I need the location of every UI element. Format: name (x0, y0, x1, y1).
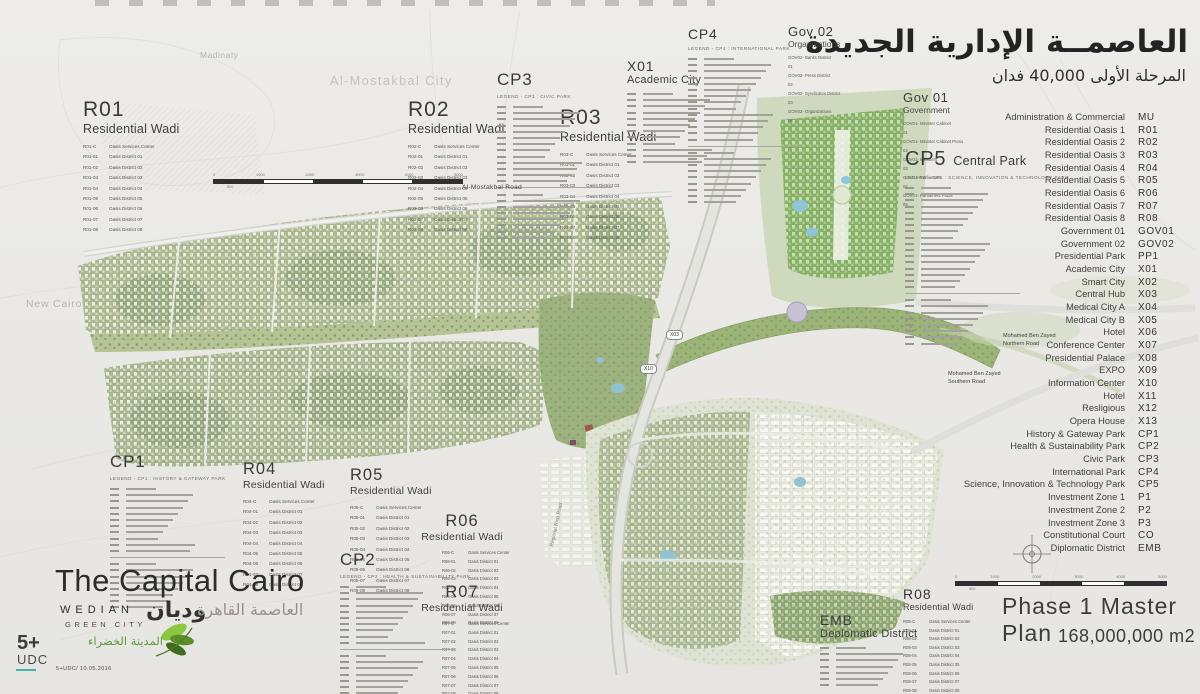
udc-url-text (16, 669, 36, 671)
block-cp5: CP5Central Park LEGEND - CP5 : SCIENCE, … (905, 148, 1145, 347)
scale-segment (1124, 582, 1166, 585)
legend-microtext-name (356, 605, 413, 607)
legend-microtext-code (627, 130, 636, 132)
legend-microtext-name (704, 58, 734, 60)
legend-microtext-code (688, 170, 697, 172)
legend-row: International ParkCP4 (860, 467, 1190, 480)
green-city-wordmark: GREEN CITY (65, 620, 146, 629)
legend-microtext-name (126, 488, 156, 490)
legend-item-name: EXPO (1099, 365, 1125, 375)
oasis-item-code: R02-06 (408, 204, 427, 214)
oasis-item-code: R01-08 (83, 225, 102, 235)
legend-microtext-name (126, 513, 178, 515)
legend-microtext-name (126, 550, 190, 552)
legend-item-code: X04 (1138, 302, 1190, 313)
gov-item-name: Banks District (805, 53, 831, 71)
scale-bar: 010002000300040005000500 (213, 172, 463, 189)
oasis-item-code: R01-07 (83, 215, 102, 225)
legend-microtext-code (820, 684, 829, 686)
scale-segments (955, 581, 1167, 586)
legend-microtext-name (356, 617, 403, 619)
legend-microtext-name (836, 659, 898, 661)
legend-microtext-code (688, 183, 697, 185)
legend-item-code: R07 (1138, 201, 1190, 212)
legend-microtext-name (704, 70, 766, 72)
oasis-item-name: Oasis District 03 (929, 644, 959, 653)
legend-microtext-name (921, 224, 963, 226)
legend-item-code: CP5 (1138, 479, 1190, 490)
legend-microtext-code (340, 642, 349, 644)
legend-microtext-code (688, 176, 697, 178)
legend-item-code: R05 (1138, 175, 1190, 186)
legend-microtext-name (513, 218, 565, 220)
udc-logo-bottom: UDC (17, 652, 48, 667)
oasis-item-name: Oasis District 06 (929, 670, 959, 679)
legend-item-code: X05 (1138, 315, 1190, 326)
scale-sub-label: 500 (227, 185, 463, 189)
oasis-item-name: Oasis District 08 (929, 687, 959, 694)
legend-microtext-code (688, 120, 697, 122)
oasis-item-name: Oasis Services Center (929, 618, 971, 627)
legend-item-code: CO (1138, 530, 1190, 541)
legend-item-name: Science, Innovation & Technology Park (964, 479, 1125, 489)
oasis-item-name: Oasis District 05 (109, 194, 142, 204)
legend-item-code: R02 (1138, 137, 1190, 148)
gov-item-code: GOV02-02 (788, 71, 805, 89)
scale-tick-label: 1000 (990, 574, 999, 579)
legend-microtext-code (340, 611, 349, 613)
legend-microtext-code (688, 95, 697, 97)
legend-microtext-name (513, 237, 550, 239)
block-cp2: CP2 LEGEND - CP2 : HEALTH & SUSTAINABILI… (340, 550, 510, 694)
scale-tick-label: 4000 (1116, 574, 1125, 579)
scale-segment (363, 180, 413, 183)
legend-microtext-name (836, 647, 866, 649)
block-title: Residential Wadi (350, 485, 432, 497)
legend-microtext-name (356, 629, 393, 631)
legend-item-code: X01 (1138, 264, 1190, 275)
scale-tick-label: 1000 (256, 172, 265, 177)
block-title: Deplomatic District (820, 628, 917, 640)
oasis-item-code: R02-01 (408, 152, 427, 162)
legend-divider (110, 557, 225, 558)
legend-microtext-code (340, 592, 349, 594)
legend-item-code: CP2 (1138, 441, 1190, 452)
legend-microtext-code (110, 544, 119, 546)
legend-microtext-code (905, 299, 914, 301)
legend-microtext-code (905, 280, 914, 282)
legend-microtext-code (905, 230, 914, 232)
legend-row: Investment Zone 2P2 (860, 505, 1190, 518)
legend-microtext-code (497, 194, 506, 196)
legend-microtext-code (110, 538, 119, 540)
master-plan-poster: Madinaty Al-Mostakbal City New Cairo الع… (0, 0, 1200, 694)
legend-microtext-name (356, 611, 408, 613)
legend-microtext-name (513, 212, 570, 214)
legend-microtext-code (905, 255, 914, 257)
scale-segment (956, 582, 998, 585)
legend-microtext-name (356, 686, 403, 688)
legend-microtext-name (921, 212, 973, 214)
legend-item-name: Resligious (1082, 403, 1125, 413)
legend-microtext-name (704, 83, 756, 85)
legend-microtext-name (513, 200, 580, 202)
legend-item-code: R03 (1138, 150, 1190, 161)
legend-microtext-code (688, 139, 697, 141)
gov-item-name: Organizations (805, 107, 832, 125)
gov-list-row: GOV02-04Organizations (788, 107, 840, 125)
block-subtitle: LEGEND - CP3 : CIVIC PARK (497, 94, 647, 99)
legend-microtext-code (905, 336, 914, 338)
legend-microtext-code (110, 500, 119, 502)
oasis-item-name: Oasis District 06 (109, 204, 142, 214)
legend-microtext-name (704, 195, 741, 197)
legend-row: Health & Sustainability ParkCP2 (860, 441, 1190, 454)
legend-row: Science, Innovation & Technology ParkCP5 (860, 479, 1190, 492)
legend-item-name: Diplomatic District (1051, 543, 1125, 553)
legend-microtext-code (340, 617, 349, 619)
oasis-list-row: R01-08Oasis District 08 (83, 225, 180, 235)
legend-microtext-code (110, 513, 119, 515)
legend-microtext-row (688, 136, 828, 142)
scale-bar: 010002000300040005000500 (955, 574, 1167, 591)
oasis-list-row: R01-04Oasis District 04 (83, 184, 180, 194)
legend-microtext-code (340, 667, 349, 669)
legend-microtext-name (643, 130, 685, 132)
legend-microtext-name (356, 667, 418, 669)
scale-segment (313, 180, 363, 183)
legend-microtext-name (704, 176, 756, 178)
legend-microtext-code (820, 666, 829, 668)
legend-microtext-code (905, 206, 914, 208)
legend-microtext-code (627, 112, 636, 114)
legend-item-code: X08 (1138, 353, 1190, 364)
legend-microtext-code (497, 143, 506, 145)
legend-microtext-name (704, 164, 766, 166)
page-subtitle-arabic: المرحلة الأولى 40,000 فدان (992, 66, 1186, 85)
legend-item-code: P2 (1138, 505, 1190, 516)
oasis-item-code: R01-02 (83, 163, 102, 173)
legend-microtext-code (110, 507, 119, 509)
legend-row: Investment Zone 1P1 (860, 492, 1190, 505)
legend-microtext-code (688, 70, 697, 72)
legend-microtext-name (921, 286, 955, 288)
legend-microtext-code (688, 195, 697, 197)
scale-labels: 010002000300040005000 (213, 172, 463, 177)
oasis-item-code: R02-08 (408, 225, 427, 235)
legend-microtext-name (704, 95, 746, 97)
legend-microtext-code (627, 124, 636, 126)
legend-item-code: GOV02 (1138, 239, 1190, 250)
legend-item-name: Investment Zone 3 (1048, 518, 1125, 528)
legend-microtext-code (688, 132, 697, 134)
gov-item-name: Press District (805, 71, 830, 89)
legend-item-name: Administration & Commercial (1005, 112, 1125, 122)
legend-row: Opera HouseX13 (860, 416, 1190, 429)
legend-microtext-code (820, 678, 829, 680)
legend-microtext-code (905, 218, 914, 220)
legend-microtext-code (340, 623, 349, 625)
oasis-item-code: R05-03 (350, 534, 369, 544)
scale-tick-label: 5000 (1158, 574, 1167, 579)
oasis-item-code: R01-06 (83, 204, 102, 214)
legend-microtext-code (688, 77, 697, 79)
legend-microtext-name (704, 89, 751, 91)
legend-microtext-name (704, 158, 771, 160)
oasis-list-row: R02-05Oasis District 05 (408, 194, 505, 204)
legend-microtext-name (704, 114, 773, 116)
legend-microtext-name (921, 330, 968, 332)
legend-microtext-name (921, 312, 983, 314)
legend-microtext-name (513, 168, 577, 170)
road-label-line: Southern Road (948, 378, 1001, 386)
legend-microtext-name (921, 218, 968, 220)
legend-microtext-name (836, 666, 893, 668)
legend-microtext-name (704, 120, 768, 122)
legend-microtext-name (921, 187, 951, 189)
legend-microtext-code (688, 201, 697, 203)
legend-microtext-name (513, 112, 580, 114)
block-subtitle: LEGEND - CP5 : SCIENCE, INNOVATION & TEC… (905, 175, 1145, 180)
legend-item-name: Opera House (1070, 416, 1125, 426)
map-label-mostakbal-city: Al-Mostakbal City (330, 74, 453, 88)
oasis-item-name: Oasis Services Center (109, 142, 155, 152)
wedian-wordmark: WEDIAN (60, 604, 134, 616)
legend-microtext-name (513, 131, 565, 133)
legend-microtext-name (921, 249, 985, 251)
scale-segments (213, 179, 463, 184)
legend-microtext-name (921, 199, 983, 201)
legend-row: Civic ParkCP3 (860, 454, 1190, 467)
scale-sub-label: 500 (969, 587, 1167, 591)
legend-microtext-code (627, 93, 636, 95)
legend-microtext-name (921, 343, 958, 345)
legend-microtext-name (513, 137, 560, 139)
legend-item-name: History & Gateway Park (1026, 429, 1125, 439)
block-title: Residential Wadi (83, 122, 180, 136)
legend-microtext-code (820, 659, 829, 661)
legend-microtext-code (497, 156, 506, 158)
legend-microtext-name (513, 206, 575, 208)
oasis-item-name: Oasis District 07 (929, 678, 959, 687)
legend-microtext-name (513, 224, 560, 226)
legend-microtext-code (340, 674, 349, 676)
legend-microtext-code (905, 193, 914, 195)
oasis-list-row: R01-06Oasis District 06 (83, 204, 180, 214)
block-emb: EMB Deplomatic District (820, 612, 917, 688)
legend-microtext-name (921, 305, 988, 307)
map-label-madinaty: Madinaty (200, 50, 239, 60)
legend-microtext-name (704, 152, 734, 154)
legend-microtext-code (497, 125, 506, 127)
legend-microtext-code (905, 268, 914, 270)
legend-microtext-code (905, 312, 914, 314)
legend-microtext-name (921, 237, 953, 239)
oasis-item-name: Oasis District 05 (434, 194, 467, 204)
legend-microtext-row (688, 199, 828, 205)
legend-microtext-code (110, 550, 119, 552)
legend-microtext-name (836, 678, 883, 680)
legend-microtext-name (513, 180, 567, 182)
block-subtitle: LEGEND - CP2 : HEALTH & SUSTAINABILITY P… (340, 574, 510, 579)
legend-microtext-code (497, 106, 506, 108)
block-code: CP2 (340, 550, 510, 570)
legend-microtext-code (340, 680, 349, 682)
legend-divider (340, 649, 455, 650)
legend-item-code: X12 (1138, 403, 1190, 414)
oasis-item-name: Oasis District 01 (109, 152, 142, 162)
gov-item-code: GOV02-01 (788, 53, 805, 71)
legend-microtext-name (704, 108, 736, 110)
legend-microtext-name (513, 118, 575, 120)
legend-item-code: X06 (1138, 327, 1190, 338)
legend-microtext-code (627, 149, 636, 151)
legend-microtext-name (126, 507, 183, 509)
legend-row: EXPOX09 (860, 365, 1190, 378)
oasis-item-code: R05-02 (350, 524, 369, 534)
legend-microtext-name (126, 494, 193, 496)
legend-item-name: Investment Zone 1 (1048, 492, 1125, 502)
block-r02: R02 Residential Wadi R02-COasis Services… (408, 98, 505, 236)
legend-microtext-name (921, 255, 980, 257)
legend-microtext-name (513, 174, 572, 176)
legend-item-code: PP1 (1138, 251, 1190, 262)
legend-item-code: X09 (1138, 365, 1190, 376)
oasis-list-row: R01-02Oasis District 02 (83, 163, 180, 173)
legend-microtext-code (905, 249, 914, 251)
legend-microtext-name (513, 149, 550, 151)
legend-microtext-name (643, 143, 675, 145)
oasis-item-code: R01-C (83, 142, 102, 152)
legend-row: HotelX11 (860, 391, 1190, 404)
legend-divider (905, 293, 1020, 294)
legend-microtext-row (340, 690, 510, 694)
legend-microtext-code (340, 586, 349, 588)
legend-microtext-code (688, 158, 697, 160)
oasis-item-code: R02-07 (408, 215, 427, 225)
legend-microtext-name (704, 64, 771, 66)
gov-item-name: Minister Cabinet (920, 119, 951, 137)
legend-microtext-code (497, 131, 506, 133)
oasis-item-name: Oasis District 08 (109, 225, 142, 235)
page-title-arabic: العاصمــة الإدارية الجديدة (805, 24, 1188, 60)
legend-microtext-code (497, 168, 506, 170)
oasis-item-name: Oasis District 02 (929, 635, 959, 644)
legend-item-name: Civic Park (1083, 454, 1125, 464)
project-title-arabic: العاصمة القاهرة (197, 600, 303, 619)
legend-microtext-name (836, 672, 888, 674)
legend-microtext-name (921, 243, 990, 245)
legend-microtext-code (905, 343, 914, 345)
scale-segment (412, 180, 462, 183)
block-title: Residential Wadi (408, 122, 505, 136)
legend-microtext-name (704, 101, 741, 103)
oasis-list-row: R02-07Oasis District 07 (408, 215, 505, 225)
legend-microtext-code (688, 108, 697, 110)
block-code: Gov 02 (788, 24, 840, 39)
legend-microtext-code (820, 647, 829, 649)
legend-microtext-name (921, 336, 963, 338)
legend-microtext-code (497, 118, 506, 120)
block-r01: R01 Residential Wadi R01-COasis Services… (83, 98, 180, 236)
legend-microtext-code (110, 519, 119, 521)
legend-microtext-name (356, 642, 425, 644)
legend-microtext-code (688, 58, 697, 60)
legend-microtext-name (643, 136, 680, 138)
legend-microtext-name (513, 194, 543, 196)
legend-microtext-name (356, 636, 388, 638)
scale-segment (214, 180, 264, 183)
oasis-list-row: R01-07Oasis District 07 (83, 215, 180, 225)
oasis-item-code: R02-05 (408, 194, 427, 204)
legend-microtext-code (905, 212, 914, 214)
road-label-line: Northern Road (1003, 340, 1056, 348)
legend-microtext-name (356, 586, 386, 588)
legend-microtext-code (110, 494, 119, 496)
legend-row: Presidential PalaceX08 (860, 353, 1190, 366)
legend-microtext-code (497, 200, 506, 202)
legend-microtext-name (513, 106, 543, 108)
project-title: The Capital Cairo (55, 563, 305, 599)
block-cp3: CP3 LEGEND - CP3 : CIVIC PARK (497, 70, 647, 241)
scale-labels: 010002000300040005000 (955, 574, 1167, 579)
legend-microtext-code (905, 274, 914, 276)
legend-microtext-row (110, 548, 290, 554)
legend-item-code: R08 (1138, 213, 1190, 224)
legend-microtext-code (340, 655, 349, 657)
legend-microtext-code (688, 114, 697, 116)
block-title: Residential Wadi (402, 531, 522, 543)
block-code: CP5 (905, 148, 946, 170)
gov-list-row: GOV02-02Press District (788, 71, 840, 89)
legend-microtext-code (688, 189, 697, 191)
legend-microtext-code (627, 155, 636, 157)
legend-item-code: MU (1138, 112, 1190, 123)
oasis-item-code: R02-C (408, 142, 427, 152)
legend-microtext-code (688, 126, 697, 128)
legend-microtext-code (340, 605, 349, 607)
map-label-new-cairo: New Cairo (26, 298, 82, 310)
scale-tick-label: 0 (955, 574, 957, 579)
legend-microtext-name (356, 592, 423, 594)
legend-microtext-name (921, 206, 978, 208)
legend-microtext-row (340, 640, 510, 646)
legend-microtext-code (905, 187, 914, 189)
oasis-item-code: R05-01 (350, 513, 369, 523)
gov-item-code: GOV02-04 (788, 107, 805, 125)
scale-tick-label: 3000 (1074, 574, 1083, 579)
legend-item-code: R04 (1138, 163, 1190, 174)
legend-row: Investment Zone 3P3 (860, 518, 1190, 531)
legend-item-name: Constitutional Court (1043, 530, 1125, 540)
credit-line: 5+UDC/ 10.05.2016 (56, 666, 112, 672)
legend-microtext-code (497, 231, 506, 233)
road-label-mostakbal: Al-Mostakbal Road (462, 184, 522, 191)
legend-microtext-code (905, 330, 914, 332)
legend-microtext-name (513, 231, 555, 233)
legend-item-code: GOV01 (1138, 226, 1190, 237)
block-title: Government (903, 105, 963, 115)
legend-microtext-code (905, 243, 914, 245)
cropped-header-artifact (95, 0, 715, 6)
legend-microtext-name (704, 77, 761, 79)
legend-microtext-code (820, 653, 829, 655)
legend-microtext-name (126, 538, 158, 540)
gov-list-row: GOV02-03Syndicates District (788, 89, 840, 107)
legend-microtext-code (688, 83, 697, 85)
scale-tick-label: 3000 (355, 172, 364, 177)
legend-microtext-code (497, 224, 506, 226)
